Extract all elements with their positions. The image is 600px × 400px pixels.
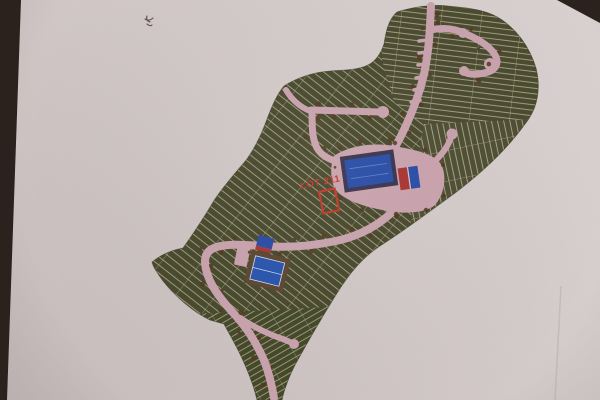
site-plan-photo-canvas: LOT 211 (0, 0, 600, 400)
photo-of-site-plan: LOT 211 (0, 0, 600, 400)
photo-shading (0, 0, 600, 400)
